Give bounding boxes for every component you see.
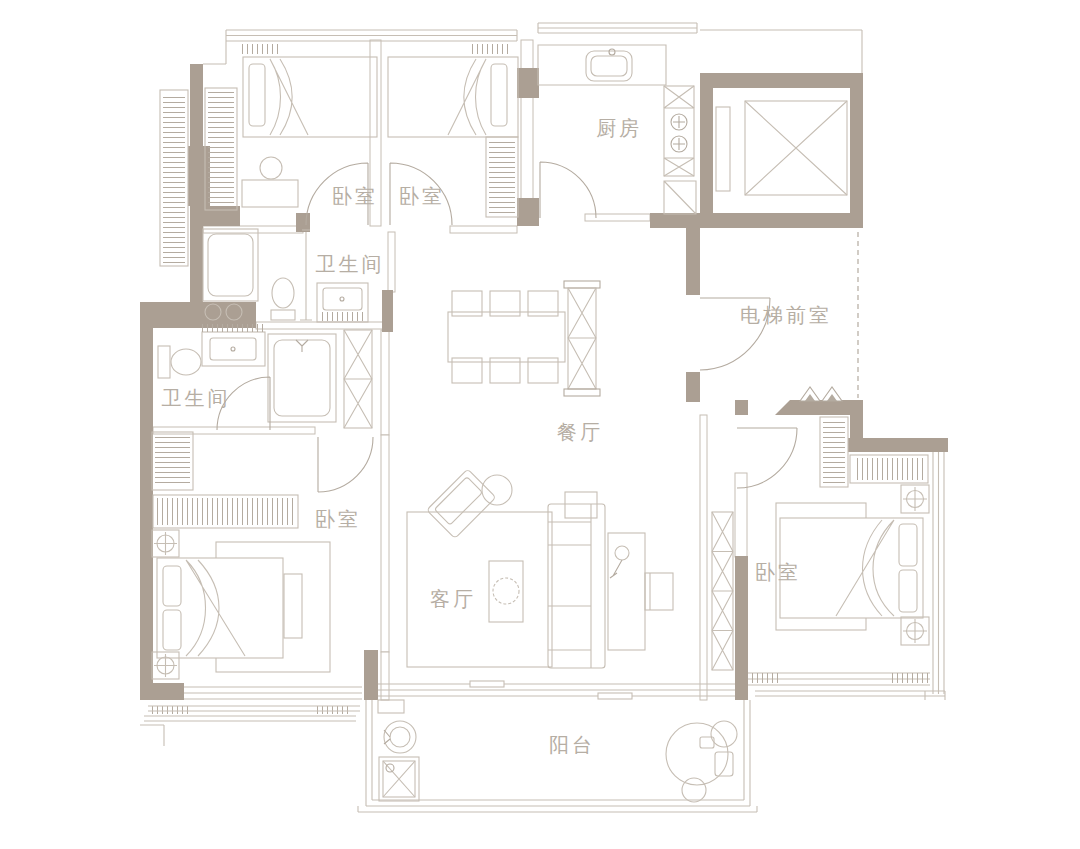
stool-top-left	[260, 157, 282, 179]
washing-machine-dial	[386, 764, 394, 772]
wall-shaft-top	[700, 73, 863, 88]
wall-under-bedroom2	[450, 226, 517, 233]
wardrobe-top-left-hatch	[208, 91, 234, 207]
bath-upper-partition	[300, 230, 312, 320]
nightstand-right-1	[901, 485, 929, 513]
shower-upper	[203, 229, 258, 301]
bed-bedroom-right	[780, 518, 923, 618]
bathroom-lower-label: 卫生间	[162, 387, 231, 409]
quilt-top-right	[448, 59, 486, 135]
wall-sw-corner	[140, 683, 184, 700]
balcony-chair-1	[711, 721, 737, 747]
wall-bedroom-right-west	[735, 473, 747, 557]
room-elevator-lobby: 电梯前室	[700, 232, 858, 401]
sill-hatch-2	[316, 706, 352, 714]
pier-top-divider-lower	[517, 198, 539, 226]
window-kitchen-top	[538, 23, 697, 33]
washing-machine-cross	[383, 761, 415, 797]
vanity-upper-hatch	[318, 312, 367, 321]
toilet-upper-tank	[271, 310, 295, 320]
sill-hatch-3	[752, 673, 782, 683]
sliding-door-handle-2	[598, 693, 632, 699]
wall-bedroom-right-top	[848, 438, 948, 452]
elevator-lobby-label: 电梯前室	[740, 304, 832, 326]
bedroom-top-right-label: 卧室	[399, 185, 445, 207]
wall-lobby-west-upper	[686, 228, 700, 295]
sofa-cushions	[548, 504, 591, 668]
wall-west-mid	[190, 226, 203, 304]
storage-column-cross	[712, 512, 733, 670]
wardrobe-top-right-hatch	[489, 140, 515, 214]
nightstand-right-2	[901, 617, 929, 645]
room-bathroom-lower: 卫生间	[158, 324, 372, 430]
shower-upper-tray	[208, 234, 253, 296]
room-balcony: 阳台	[358, 681, 757, 812]
living-label: 客厅	[430, 588, 476, 610]
dining-cabinet-cap-top	[564, 281, 600, 288]
elevator-cab-cross	[745, 101, 847, 195]
wall-shaft-left	[700, 88, 713, 228]
balcony-basin	[384, 721, 416, 753]
quilt-top-left	[270, 59, 308, 135]
room-living: 客厅	[407, 469, 673, 668]
storage-column-bath-cross	[344, 330, 372, 428]
burner-2-cross	[673, 138, 685, 150]
kitchen-sink-basin	[591, 56, 627, 76]
elevator-shaft	[716, 101, 847, 195]
desk-chair	[645, 573, 673, 610]
lamp-cross	[903, 487, 927, 511]
bench-bedroom-left	[284, 574, 302, 638]
pillow-top-left	[249, 64, 265, 126]
wall-bath-upper-east	[388, 232, 395, 292]
room-bedroom-top-right: 卧室	[388, 57, 518, 225]
sofa-end-table	[565, 492, 597, 518]
bathroom-upper-label: 卫生间	[316, 253, 385, 275]
bedroom-top-left-label: 卧室	[332, 185, 378, 207]
coffee-table	[489, 561, 523, 622]
elevator-door-slot	[716, 107, 730, 191]
vanity-upper-drain	[340, 297, 344, 301]
door-bedroom-left	[318, 437, 373, 492]
balcony-railing	[358, 700, 757, 812]
sofa	[548, 504, 605, 668]
toilet-lower-tank	[158, 346, 170, 378]
stove-column-cells	[664, 86, 694, 176]
kitchen-cabinet	[664, 181, 696, 214]
floor-plan-canvas: 卧室 卧室 厨房 电梯前室	[0, 0, 1080, 849]
wall-between-baths	[256, 322, 388, 329]
kitchen-label: 厨房	[596, 117, 642, 139]
vanity-lower-mirror	[202, 324, 265, 332]
wall-west-outer	[140, 328, 153, 700]
toilet-lower-bowl	[171, 349, 201, 375]
sill-bedroom-right	[755, 691, 945, 700]
dining-label: 餐厅	[557, 421, 603, 443]
nightstand-left-1	[152, 530, 179, 557]
wall-living-east	[700, 415, 707, 700]
sliding-door-handle-1	[470, 681, 504, 687]
pier-balcony-left	[364, 650, 378, 700]
door-kitchen	[540, 162, 596, 218]
wardrobe-bedroom-right-hatch	[853, 458, 925, 480]
wall-shaft-bottom	[700, 213, 863, 228]
wall-dining-west	[381, 330, 389, 435]
wall-bedroom-left-top	[153, 427, 315, 434]
pillow-top-right	[491, 64, 507, 126]
room-dining: 餐厅	[448, 281, 603, 443]
floor-lamp-stem	[610, 560, 622, 578]
armchair	[427, 469, 496, 538]
coffee-table-decor	[493, 578, 519, 604]
corner-bottom-left	[140, 725, 164, 746]
side-table	[482, 475, 512, 505]
closet-bedroom-left-hatch	[155, 435, 190, 487]
kitchen-faucet	[609, 49, 615, 55]
corner-top-left	[203, 41, 226, 64]
window-bedroom-right-east	[933, 452, 944, 694]
vanity-lower-sink	[210, 338, 256, 360]
wall-kitchen-divider	[521, 40, 533, 202]
floor-plan-drawing: 卧室 卧室 厨房 电梯前室	[0, 0, 1080, 849]
room-bedroom-left: 卧室	[152, 432, 373, 679]
wardrobe-bedroom-left-hatch	[156, 498, 295, 525]
burner-1-cross	[673, 116, 685, 128]
toilet-upper-bowl	[272, 278, 294, 308]
vanity-upper-sink	[323, 288, 362, 310]
window-bedroom-left-bottom	[184, 687, 362, 699]
window-top-bedrooms	[226, 30, 517, 41]
wall-nw-step	[190, 206, 240, 226]
lamp-cross	[903, 619, 927, 643]
sill-hatch-1	[152, 706, 190, 714]
pier-bedroom-doors	[296, 213, 310, 232]
armchair-body	[427, 469, 496, 538]
pier-dining-west	[382, 290, 393, 332]
shower-head-icon	[296, 340, 308, 352]
vanity-lower-drain	[231, 347, 235, 351]
wall-lobby-west-lower	[686, 372, 700, 402]
dining-cabinet-cross	[568, 288, 596, 389]
dining-table	[448, 312, 565, 362]
pier-top-divider-upper	[517, 68, 539, 98]
bedroom-left-label: 卧室	[315, 508, 361, 530]
bedroom-right-label: 卧室	[755, 561, 801, 583]
wall-shaft-right	[850, 88, 863, 228]
wall-lobby-step	[850, 415, 863, 440]
wall-living-west	[381, 435, 389, 652]
bed-bedroom-left	[157, 558, 283, 658]
balcony-shelf	[378, 700, 404, 713]
roofline-top-right	[700, 30, 862, 73]
curtain-hatch-2	[472, 44, 512, 54]
console-desk	[608, 533, 645, 650]
sill-hatch-4	[888, 673, 928, 683]
balcony-label: 阳台	[549, 734, 595, 756]
dining-cabinet-cap-bottom	[564, 389, 600, 396]
lamp-cross	[154, 532, 177, 555]
floor-lamp	[615, 546, 629, 560]
sliding-door-living	[378, 684, 735, 696]
desk-top-left	[242, 180, 298, 207]
kitchen-stove-column	[664, 86, 694, 176]
corridor-storage	[712, 512, 733, 670]
pier-balcony-right	[735, 556, 748, 700]
curtain-hatch-1	[242, 44, 282, 54]
balcony-basin-inner	[390, 727, 410, 747]
wall-kitchen-bottom	[585, 214, 650, 221]
room-kitchen: 厨房	[538, 45, 696, 218]
ac-platform-hatch	[163, 93, 185, 263]
balcony-chair-2	[682, 778, 706, 802]
closet-bedroom-right-hatch	[823, 420, 845, 484]
jamb-bedroom-right-door	[735, 400, 748, 415]
wall-lobby-bottom	[775, 400, 863, 415]
balcony-tray-1	[715, 752, 733, 776]
wall-living-west-lower	[381, 652, 389, 700]
rug-living	[407, 512, 552, 667]
